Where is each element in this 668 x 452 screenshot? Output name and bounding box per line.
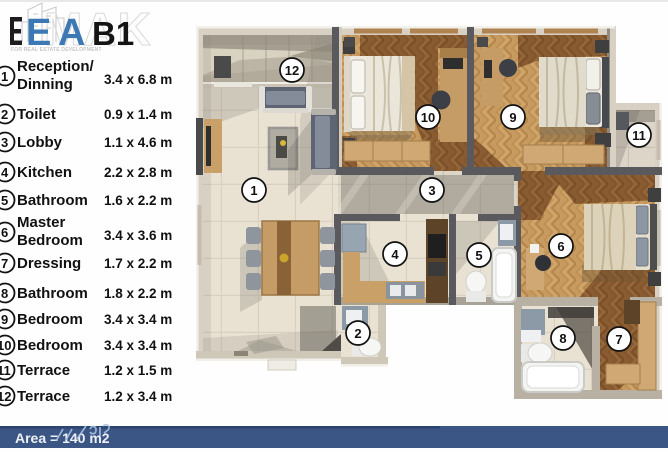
svg-text:9: 9: [509, 110, 516, 125]
svg-text:10: 10: [0, 338, 11, 353]
svg-text:1.2 x 1.5 m: 1.2 x 1.5 m: [104, 363, 172, 378]
svg-text:3.4 x 3.4 m: 3.4 x 3.4 m: [104, 312, 172, 327]
svg-text:2: 2: [354, 326, 361, 341]
svg-text:1.7 x 2.2 m: 1.7 x 2.2 m: [104, 256, 172, 271]
svg-text:3.4 x 3.4 m: 3.4 x 3.4 m: [104, 338, 172, 353]
svg-text:12: 12: [0, 389, 11, 404]
svg-text:10: 10: [421, 110, 435, 125]
svg-text:Dinning: Dinning: [17, 76, 73, 93]
svg-text:0.9 x 1.4 m: 0.9 x 1.4 m: [104, 107, 172, 122]
svg-text:Bathroom: Bathroom: [17, 285, 88, 302]
svg-text:Bedroom: Bedroom: [17, 311, 83, 328]
svg-text:1.1 x 4.6 m: 1.1 x 4.6 m: [104, 135, 172, 150]
svg-text:Master: Master: [17, 214, 66, 231]
svg-text:1.2 x 3.4 m: 1.2 x 3.4 m: [104, 389, 172, 404]
svg-text:Lobby: Lobby: [17, 134, 63, 151]
svg-text:2.2 x 2.8 m: 2.2 x 2.8 m: [104, 165, 172, 180]
svg-text:6: 6: [557, 239, 564, 254]
svg-text:Bedroom: Bedroom: [17, 337, 83, 354]
svg-text:3.4 x 6.8 m: 3.4 x 6.8 m: [104, 72, 172, 87]
svg-text:3: 3: [1, 135, 8, 150]
svg-text:3.4 x 3.6 m: 3.4 x 3.6 m: [104, 228, 172, 243]
svg-text:Dressing: Dressing: [17, 255, 81, 272]
svg-text:4: 4: [1, 165, 9, 180]
svg-text:Terrace: Terrace: [17, 388, 70, 405]
svg-text:12: 12: [285, 63, 299, 78]
svg-text:1: 1: [1, 69, 8, 84]
svg-text:Kitchen: Kitchen: [17, 164, 72, 181]
svg-text:5: 5: [1, 193, 8, 208]
svg-text:Bathroom: Bathroom: [17, 192, 88, 209]
svg-text:Terrace: Terrace: [17, 362, 70, 379]
svg-text:Bedroom: Bedroom: [17, 232, 83, 249]
svg-text:11: 11: [632, 128, 646, 143]
svg-text:8: 8: [1, 286, 8, 301]
svg-text:2: 2: [1, 107, 8, 122]
svg-text:9: 9: [1, 312, 8, 327]
svg-text:1.8 x 2.2 m: 1.8 x 2.2 m: [104, 286, 172, 301]
svg-text:7: 7: [615, 332, 622, 347]
svg-text:3: 3: [428, 183, 435, 198]
svg-text:4: 4: [391, 247, 399, 262]
svg-text:1.6 x 2.2 m: 1.6 x 2.2 m: [104, 193, 172, 208]
svg-text:11: 11: [0, 363, 11, 378]
svg-text:FOR REAL ESTATE DEVELOPMENT: FOR REAL ESTATE DEVELOPMENT: [11, 47, 102, 53]
svg-text:8: 8: [559, 331, 566, 346]
svg-text:1: 1: [250, 183, 257, 198]
svg-text:7: 7: [1, 256, 8, 271]
svg-text:Reception/: Reception/: [17, 58, 95, 75]
svg-text:Toilet: Toilet: [17, 106, 56, 123]
svg-text:6: 6: [1, 225, 8, 240]
svg-text:5: 5: [475, 248, 482, 263]
